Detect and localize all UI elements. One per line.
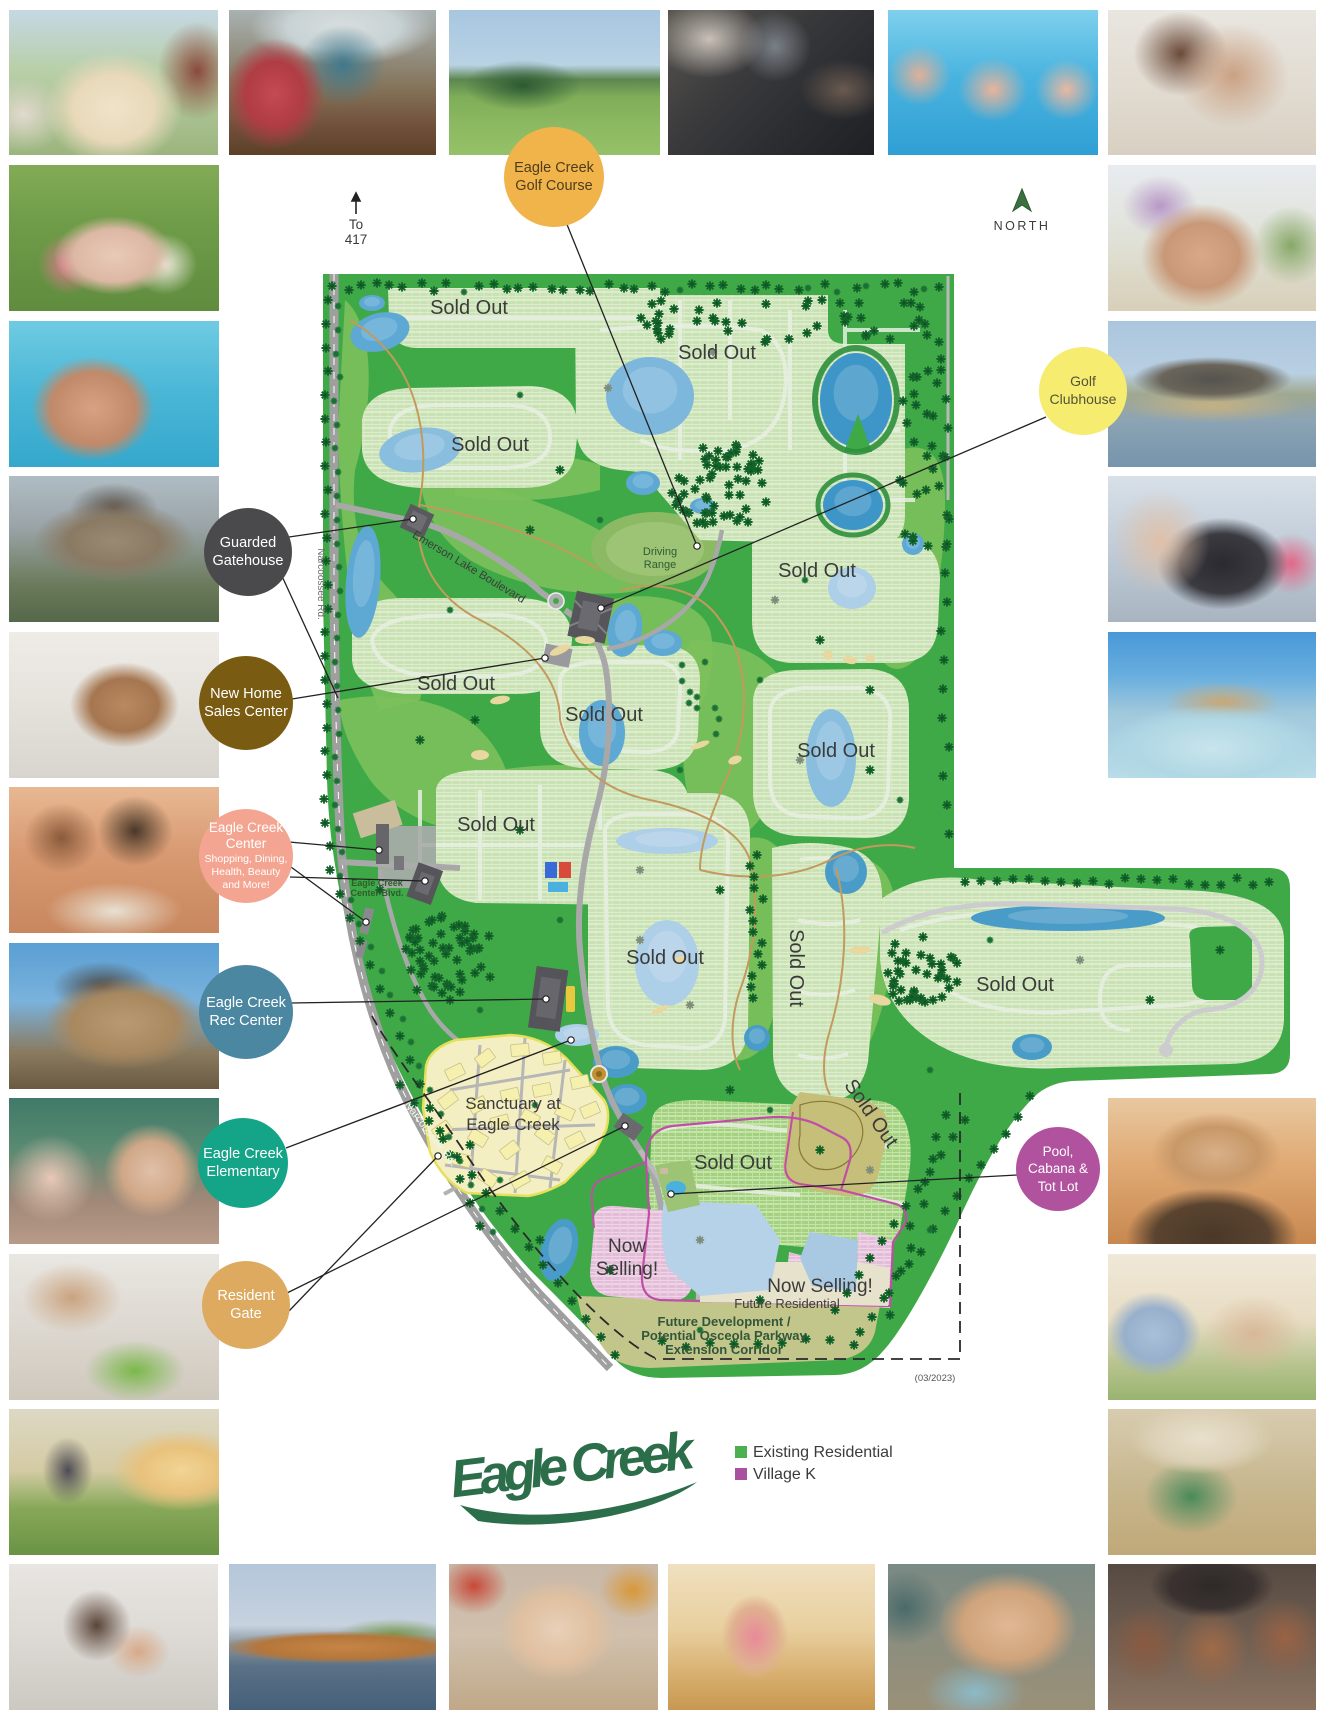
svg-text:Narcoossee Rd.: Narcoossee Rd. [315,548,326,620]
svg-text:NORTH: NORTH [994,219,1051,233]
svg-text:Now Selling!: Now Selling! [767,1276,873,1297]
svg-text:Driving: Driving [643,546,677,558]
svg-text:Sold Out: Sold Out [678,342,756,364]
svg-text:Future Development /: Future Development / [658,1314,791,1329]
svg-text:Sanctuary at: Sanctuary at [465,1094,561,1113]
svg-text:Selling!: Selling! [596,1259,658,1280]
svg-text:Sold Out: Sold Out [797,740,875,762]
svg-text:Extension Corridor: Extension Corridor [665,1342,783,1357]
svg-text:Existing Residential: Existing Residential [753,1444,893,1461]
svg-text:Village K: Village K [753,1466,816,1483]
svg-text:Sold Out: Sold Out [778,560,856,582]
svg-text:Center Blvd.: Center Blvd. [350,888,403,898]
svg-text:Future Residential: Future Residential [734,1296,840,1311]
svg-text:Eagle Creek: Eagle Creek [466,1115,560,1134]
svg-text:417: 417 [345,232,368,247]
svg-text:Sold Out: Sold Out [626,947,704,969]
svg-text:Sold Out: Sold Out [976,974,1054,996]
svg-text:(03/2023): (03/2023) [915,1373,956,1384]
svg-text:Sold Out: Sold Out [457,814,535,836]
svg-text:Sold Out: Sold Out [451,434,529,456]
svg-text:To: To [349,217,363,232]
svg-text:Sold Out: Sold Out [785,929,807,1007]
svg-text:Sold Out: Sold Out [565,704,643,726]
svg-text:Sold Out: Sold Out [430,297,508,319]
svg-text:Sold Out: Sold Out [694,1152,772,1174]
svg-text:Now: Now [608,1236,646,1257]
svg-text:Potential Osceola Parkway: Potential Osceola Parkway [641,1328,807,1343]
svg-text:Range: Range [644,559,676,571]
